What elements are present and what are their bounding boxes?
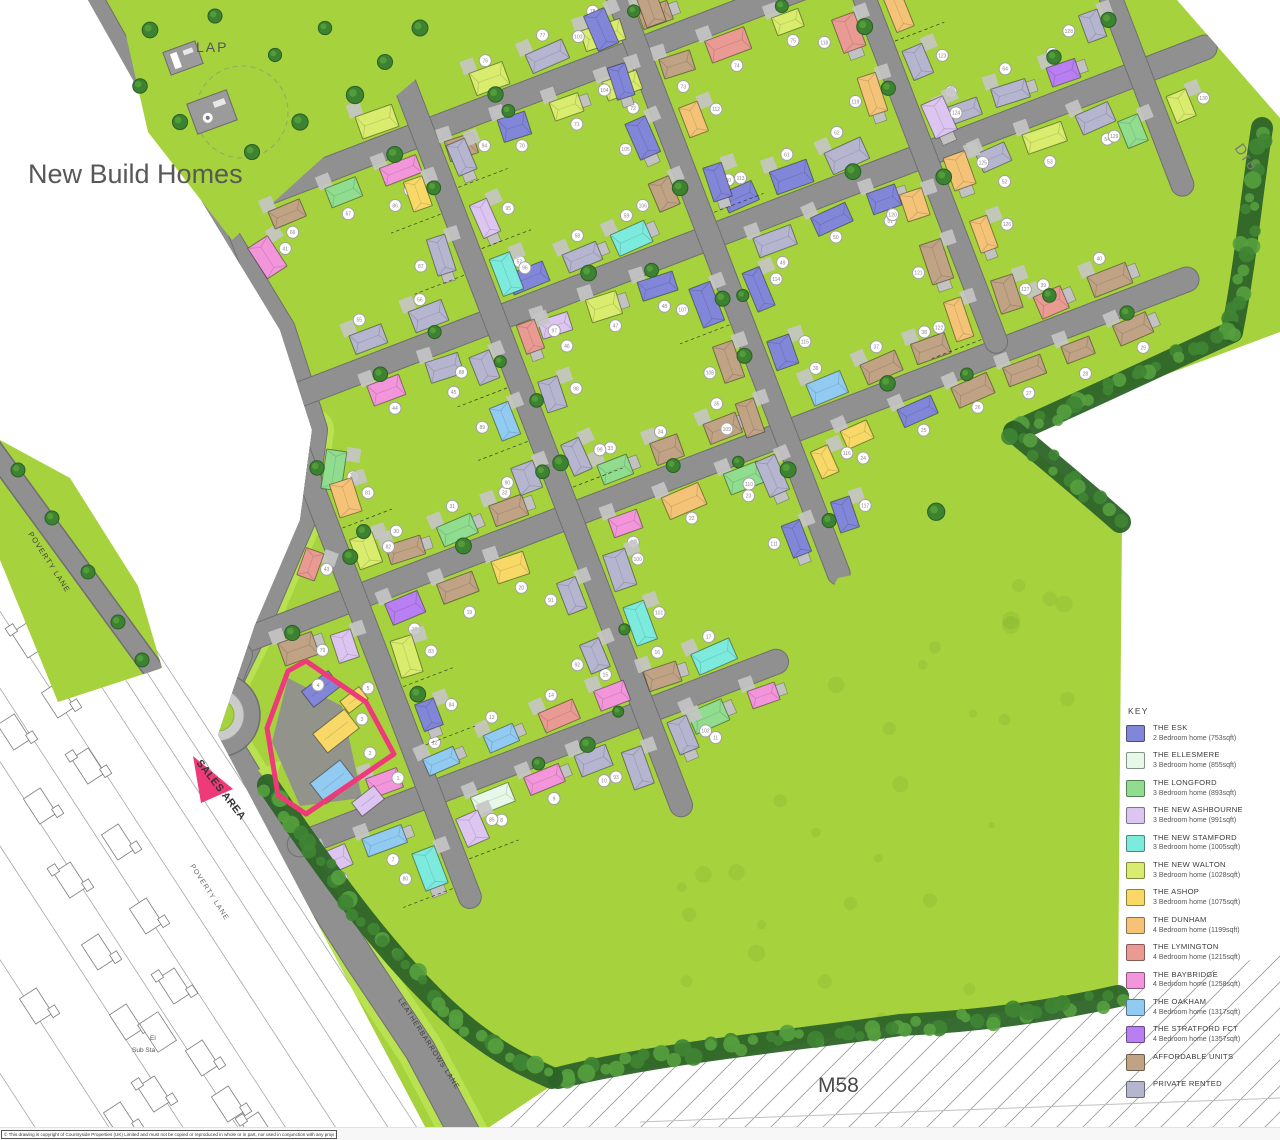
legend-entry-name: THE ELLESMERE — [1153, 751, 1236, 760]
tree — [428, 325, 441, 338]
legend-entry: THE BAYBRIDGE4 Bedroom home (1258sqft) — [1126, 971, 1278, 989]
plot-number: 86 — [389, 199, 401, 211]
plot-number: 43 — [321, 563, 333, 575]
legend-entry: THE STRATFORD FCT4 Bedroom home (1357sqf… — [1126, 1025, 1278, 1043]
svg-text:83: 83 — [428, 649, 434, 655]
plot-number: 4 — [312, 679, 324, 691]
el-sub-sta-label-1: El — [150, 1035, 156, 1042]
plot-number: 120 — [887, 209, 899, 221]
legend-entry-name: THE NEW STAMFORD — [1153, 834, 1240, 843]
plot-number: 98 — [570, 382, 582, 394]
plot-number: 81 — [362, 487, 374, 499]
tree — [881, 81, 895, 95]
tree — [1043, 289, 1057, 303]
legend-entry-name: THE NEW WALTON — [1153, 861, 1240, 870]
plot-number: 97 — [548, 325, 560, 337]
legend-entry-name: THE LONGFORD — [1153, 779, 1236, 788]
tree — [880, 376, 896, 392]
svg-text:124: 124 — [952, 111, 961, 117]
svg-text:48: 48 — [662, 304, 668, 310]
plot-number: 82 — [382, 541, 394, 553]
plot-number: 61 — [781, 148, 793, 160]
svg-text:62: 62 — [834, 130, 840, 136]
plot-number: 12 — [429, 736, 441, 748]
svg-text:123: 123 — [938, 53, 947, 59]
plot-number: 13 — [486, 711, 498, 723]
svg-text:12: 12 — [432, 740, 438, 746]
plot-number: 14 — [545, 689, 557, 701]
plot-number: 64 — [999, 63, 1011, 75]
legend-entry-desc: 4 Bedroom home (1215sqft) — [1153, 954, 1240, 962]
svg-text:33: 33 — [608, 446, 614, 452]
svg-text:117: 117 — [861, 503, 869, 509]
tree — [346, 86, 363, 103]
plot-number: 114 — [770, 273, 782, 285]
plot-number: 111 — [768, 538, 780, 550]
svg-text:13: 13 — [489, 715, 495, 721]
svg-text:23: 23 — [746, 494, 752, 500]
legend-swatch — [1126, 944, 1145, 961]
tree — [172, 114, 187, 129]
legend: KEY THE ESK2 Bedroom home (753sqft)THE E… — [1126, 706, 1278, 1107]
tree — [488, 87, 503, 102]
existing-building-outline — [101, 821, 141, 864]
plot-number: 94 — [478, 140, 490, 152]
svg-text:44: 44 — [392, 406, 398, 412]
legend-entry-desc: 3 Bedroom home (893sqft) — [1153, 790, 1236, 798]
svg-text:91: 91 — [548, 598, 554, 604]
svg-text:37: 37 — [874, 345, 880, 351]
plot-number: 33 — [604, 442, 616, 454]
plot-number: 38 — [918, 326, 930, 338]
tree — [530, 394, 544, 408]
plot-number: 124 — [950, 107, 962, 119]
svg-text:120: 120 — [888, 213, 897, 219]
site-plan-map: 6789101112131415161718192021222324252627… — [0, 0, 1280, 1140]
plot-number: 100 — [632, 553, 644, 565]
tree — [1120, 306, 1134, 320]
tree — [292, 114, 308, 130]
tree — [732, 456, 744, 468]
tree — [377, 54, 392, 69]
legend-entry-desc: 3 Bedroom home (1075sqft) — [1153, 899, 1240, 907]
plot-number: 84 — [445, 699, 457, 711]
tree — [961, 368, 974, 381]
tree — [502, 105, 515, 118]
plot-number: 104 — [598, 84, 610, 96]
plot-number: 102 — [700, 725, 712, 737]
tree — [81, 565, 95, 579]
plot-number: 116 — [841, 447, 853, 459]
existing-building-outline — [23, 785, 63, 828]
tree — [11, 463, 25, 477]
legend-swatch — [1126, 1026, 1145, 1043]
plot-number: 123 — [936, 49, 948, 61]
svg-text:30: 30 — [393, 529, 399, 535]
plot-number: 125 — [977, 156, 989, 168]
plot-number: 16 — [651, 646, 663, 658]
svg-text:8: 8 — [500, 818, 503, 824]
tree — [268, 48, 281, 61]
plot-number: 44 — [389, 402, 401, 414]
plot-number: 113 — [735, 172, 747, 184]
tree — [580, 737, 595, 752]
tree — [672, 180, 688, 196]
svg-text:15: 15 — [603, 673, 609, 679]
legend-swatch — [1126, 999, 1145, 1016]
tree — [845, 164, 861, 180]
plot-number: 9 — [548, 792, 560, 804]
legend-swatch — [1126, 835, 1145, 852]
legend-swatch — [1126, 780, 1145, 797]
plot-number: 110 — [743, 478, 755, 490]
tree — [737, 348, 752, 363]
plot-number: 23 — [743, 490, 755, 502]
svg-text:99: 99 — [597, 448, 603, 454]
plot-number: 7 — [387, 854, 399, 866]
plot-number: 117 — [859, 499, 871, 511]
plot-number: 35 — [711, 398, 723, 410]
plot-number: 95 — [502, 202, 514, 214]
legend-entry-desc: 4 Bedroom home (1258sqft) — [1153, 981, 1240, 989]
plot-number: 20 — [515, 581, 527, 593]
plot-number: 130 — [1197, 92, 1209, 104]
plot-number: 53 — [1044, 156, 1056, 168]
svg-text:52: 52 — [1002, 179, 1008, 185]
legend-entry: PRIVATE RENTED — [1126, 1080, 1278, 1098]
plot-number: 30 — [390, 525, 402, 537]
plot-number: 36 — [810, 362, 822, 374]
legend-entry: THE NEW STAMFORD3 Bedroom home (1005sqft… — [1126, 834, 1278, 852]
plot-number: 91 — [545, 594, 557, 606]
plot-number: 29 — [1137, 341, 1149, 353]
plot-number: 101 — [653, 607, 665, 619]
plot-number: 49 — [777, 256, 789, 268]
footer-bar: © This drawing is copyright of Countrysi… — [0, 1127, 1280, 1140]
svg-text:32: 32 — [502, 490, 508, 496]
svg-text:110: 110 — [745, 482, 753, 488]
legend-swatch — [1126, 1081, 1145, 1098]
tree — [318, 21, 331, 34]
legend-entry: THE ASHOP3 Bedroom home (1075sqft) — [1126, 888, 1278, 906]
tree — [387, 147, 403, 163]
svg-text:19: 19 — [467, 610, 473, 616]
plot-number: 112 — [710, 103, 722, 115]
svg-text:34: 34 — [658, 430, 664, 436]
svg-text:92: 92 — [575, 663, 581, 669]
plot-number: 47 — [609, 320, 621, 332]
legend-entry-desc: 4 Bedroom home (1317sqft) — [1153, 1009, 1240, 1017]
tree — [619, 624, 630, 635]
legend-swatch — [1126, 725, 1145, 742]
tree — [553, 455, 569, 471]
svg-text:7: 7 — [392, 858, 395, 864]
svg-text:67: 67 — [345, 212, 351, 218]
plot-number: 46 — [561, 340, 573, 352]
legend-swatch — [1126, 1054, 1145, 1071]
svg-text:28: 28 — [1083, 371, 1089, 377]
svg-text:121: 121 — [914, 271, 923, 277]
plot-number: 55 — [353, 314, 365, 326]
svg-text:115: 115 — [801, 339, 809, 345]
tree — [532, 757, 545, 770]
svg-text:118: 118 — [820, 40, 828, 46]
plot-number: 24 — [857, 452, 869, 464]
plot-number: 56 — [414, 294, 426, 306]
svg-text:108: 108 — [706, 371, 715, 377]
svg-text:88: 88 — [459, 370, 465, 376]
legend-swatch — [1126, 807, 1145, 824]
plot-number: 127 — [1019, 283, 1031, 295]
plot-number: 48 — [658, 300, 670, 312]
plot-number: 50 — [830, 231, 842, 243]
svg-text:113: 113 — [737, 176, 745, 182]
tree — [373, 367, 388, 382]
plot-number: 122 — [933, 321, 945, 333]
svg-text:90: 90 — [505, 481, 511, 487]
svg-text:10: 10 — [601, 779, 607, 785]
legend-entry-desc: 4 Bedroom home (1199sqft) — [1153, 927, 1240, 935]
svg-text:82: 82 — [386, 545, 392, 551]
plot-number: 93 — [610, 771, 622, 783]
svg-text:128: 128 — [1065, 29, 1074, 35]
svg-text:43: 43 — [324, 567, 330, 573]
svg-text:97: 97 — [551, 329, 557, 335]
plot-number: 96 — [519, 262, 531, 274]
tree — [357, 525, 371, 539]
plot-number: 22 — [686, 512, 698, 524]
svg-text:49: 49 — [780, 260, 786, 266]
existing-building-outline — [19, 985, 59, 1028]
legend-heading: KEY — [1128, 706, 1278, 716]
tree — [737, 289, 749, 301]
svg-text:76: 76 — [482, 58, 488, 64]
plot-number: 83 — [425, 645, 437, 657]
legend-swatch — [1126, 752, 1145, 769]
legend-entry-name: THE ASHOP — [1153, 888, 1240, 897]
tree — [135, 653, 149, 667]
legend-entry-name: THE ESK — [1153, 724, 1236, 733]
plot-number: 118 — [818, 36, 830, 48]
plot-number: 74 — [731, 60, 743, 72]
existing-building-outline — [185, 1037, 225, 1080]
plot-number: 80 — [399, 873, 411, 885]
svg-text:17: 17 — [706, 634, 712, 640]
svg-text:11: 11 — [713, 735, 718, 741]
svg-text:47: 47 — [613, 324, 619, 330]
tree — [715, 291, 730, 306]
svg-text:45: 45 — [451, 390, 457, 396]
svg-text:22: 22 — [689, 516, 695, 522]
svg-text:79: 79 — [320, 648, 326, 654]
site-plan-page: 6789101112131415161718192021222324252627… — [0, 0, 1280, 1140]
existing-building-outline — [129, 895, 169, 938]
svg-text:77: 77 — [540, 33, 546, 39]
svg-text:125: 125 — [979, 160, 988, 166]
svg-text:70: 70 — [519, 144, 525, 150]
svg-text:102: 102 — [701, 729, 710, 735]
legend-entry-name: THE OAKHAM — [1153, 998, 1240, 1007]
plot-number: 90 — [501, 477, 513, 489]
legend-entry-desc: 3 Bedroom home (1005sqft) — [1153, 844, 1240, 852]
svg-text:26: 26 — [975, 405, 981, 411]
legend-entry: THE LONGFORD3 Bedroom home (893sqft) — [1126, 779, 1278, 797]
svg-text:9: 9 — [553, 796, 556, 802]
tree — [666, 459, 680, 473]
plot-number: 75 — [787, 34, 799, 46]
plot-number: 34 — [654, 426, 666, 438]
legend-entry: THE NEW WALTON3 Bedroom home (1028sqft) — [1126, 861, 1278, 879]
tree — [857, 19, 873, 35]
plot-number: 52 — [999, 175, 1011, 187]
plot-number: 128 — [1063, 25, 1075, 37]
svg-text:122: 122 — [935, 325, 944, 331]
tree — [285, 625, 300, 640]
svg-text:4: 4 — [317, 683, 320, 689]
tree — [494, 356, 506, 368]
legend-entry-name: PRIVATE RENTED — [1153, 1080, 1222, 1089]
tree — [780, 462, 796, 478]
tree — [613, 706, 624, 717]
svg-text:126: 126 — [1003, 222, 1012, 228]
plot-number: 109 — [721, 423, 733, 435]
plot-number: 70 — [516, 140, 528, 152]
el-sub-sta-label-2: Sub Sta — [132, 1047, 156, 1054]
svg-text:39: 39 — [1041, 283, 1047, 289]
svg-text:130: 130 — [1199, 96, 1208, 102]
svg-text:119: 119 — [851, 99, 859, 105]
plot-number: 107 — [677, 304, 689, 316]
plot-number: 41 — [279, 243, 291, 255]
tree — [45, 511, 59, 525]
svg-text:31: 31 — [450, 504, 456, 510]
svg-text:71: 71 — [574, 122, 580, 128]
svg-text:73: 73 — [681, 84, 687, 90]
plot-number: 115 — [799, 336, 811, 348]
svg-text:80: 80 — [403, 877, 409, 883]
svg-text:106: 106 — [639, 203, 648, 209]
svg-text:116: 116 — [843, 451, 851, 457]
legend-entry-desc: 3 Bedroom home (991sqft) — [1153, 817, 1243, 825]
plot-number: 103 — [572, 31, 584, 43]
tree — [410, 686, 426, 702]
plot-number: 31 — [446, 500, 458, 512]
svg-text:103: 103 — [574, 35, 583, 41]
plot-number: 88 — [455, 366, 467, 378]
plot-number: 92 — [571, 659, 583, 671]
legend-swatch — [1126, 889, 1145, 906]
plot-number: 129 — [1108, 130, 1120, 142]
legend-entry: THE ELLESMERE3 Bedroom home (855sqft) — [1126, 751, 1278, 769]
legend-entry: THE DUNHAM4 Bedroom home (1199sqft) — [1126, 916, 1278, 934]
plot-number: 85 — [486, 813, 498, 825]
svg-text:5: 5 — [367, 686, 370, 692]
tree — [581, 265, 597, 281]
tree — [928, 503, 945, 520]
tree — [1047, 50, 1061, 64]
svg-text:16: 16 — [655, 650, 661, 656]
svg-text:2: 2 — [369, 751, 372, 757]
plot-number: 89 — [476, 421, 488, 433]
plot-number: 79 — [316, 644, 328, 656]
svg-text:58: 58 — [575, 234, 581, 240]
svg-text:40: 40 — [1097, 256, 1103, 262]
svg-text:129: 129 — [1110, 134, 1119, 140]
legend-entry-desc: 2 Bedroom home (753sqft) — [1153, 735, 1236, 743]
plot-number: 10 — [598, 775, 610, 787]
svg-text:100: 100 — [634, 557, 643, 563]
svg-text:107: 107 — [678, 308, 687, 314]
svg-text:25: 25 — [921, 428, 927, 434]
svg-text:29: 29 — [1140, 345, 1146, 351]
plot-number: 108 — [704, 367, 716, 379]
tree — [310, 461, 324, 475]
copyright-text: © This drawing is copyright of Countrysi… — [4, 1132, 334, 1137]
tree — [133, 79, 148, 94]
svg-text:101: 101 — [655, 611, 664, 617]
tree — [412, 20, 428, 36]
legend-entry: THE NEW ASHBOURNE3 Bedroom home (991sqft… — [1126, 806, 1278, 824]
poverty-lane-label-lower: POVERTY LANE — [188, 863, 230, 922]
plot-number: 26 — [972, 401, 984, 413]
svg-text:24: 24 — [860, 456, 866, 462]
svg-text:127: 127 — [1021, 287, 1030, 293]
tree — [628, 5, 640, 17]
plot-number: 76 — [479, 55, 491, 67]
svg-text:72: 72 — [630, 106, 636, 112]
svg-text:89: 89 — [479, 425, 485, 431]
m58-label: M58 — [818, 1074, 859, 1097]
svg-text:87: 87 — [418, 264, 424, 270]
plot-number: 19 — [463, 606, 475, 618]
legend-entry: THE OAKHAM4 Bedroom home (1317sqft) — [1126, 998, 1278, 1016]
legend-swatch — [1126, 862, 1145, 879]
tree — [111, 615, 125, 629]
tree — [775, 0, 788, 13]
svg-text:112: 112 — [712, 107, 720, 113]
legend-entry-desc: 3 Bedroom home (1028sqft) — [1153, 872, 1240, 880]
plot-number: 25 — [918, 424, 930, 436]
svg-text:86: 86 — [392, 203, 398, 209]
legend-entry-name: THE STRATFORD FCT — [1153, 1025, 1240, 1034]
plot-number: 119 — [849, 96, 861, 108]
legend-swatch — [1126, 917, 1145, 934]
tree — [244, 144, 259, 159]
legend-entry-name: THE DUNHAM — [1153, 916, 1240, 925]
svg-text:105: 105 — [621, 147, 630, 153]
svg-text:104: 104 — [600, 88, 609, 94]
svg-text:66: 66 — [290, 230, 296, 236]
svg-text:95: 95 — [505, 206, 511, 212]
tree — [536, 465, 550, 479]
plot-number: 87 — [415, 260, 427, 272]
svg-text:85: 85 — [489, 817, 495, 823]
svg-text:1: 1 — [397, 776, 400, 782]
legend-swatch — [1126, 972, 1145, 989]
plot-number: 73 — [677, 80, 689, 92]
existing-building-outline — [151, 959, 198, 1009]
plot-number: 28 — [1079, 367, 1091, 379]
svg-text:75: 75 — [790, 38, 796, 44]
svg-text:64: 64 — [1002, 67, 1008, 73]
svg-text:27: 27 — [1026, 391, 1032, 397]
legend-entry-name: THE BAYBRIDGE — [1153, 971, 1240, 980]
plot-number: 58 — [571, 230, 583, 242]
svg-text:20: 20 — [519, 585, 525, 591]
tree — [427, 181, 441, 195]
plot-number: 45 — [448, 386, 460, 398]
lap-label: LAP — [196, 39, 228, 55]
